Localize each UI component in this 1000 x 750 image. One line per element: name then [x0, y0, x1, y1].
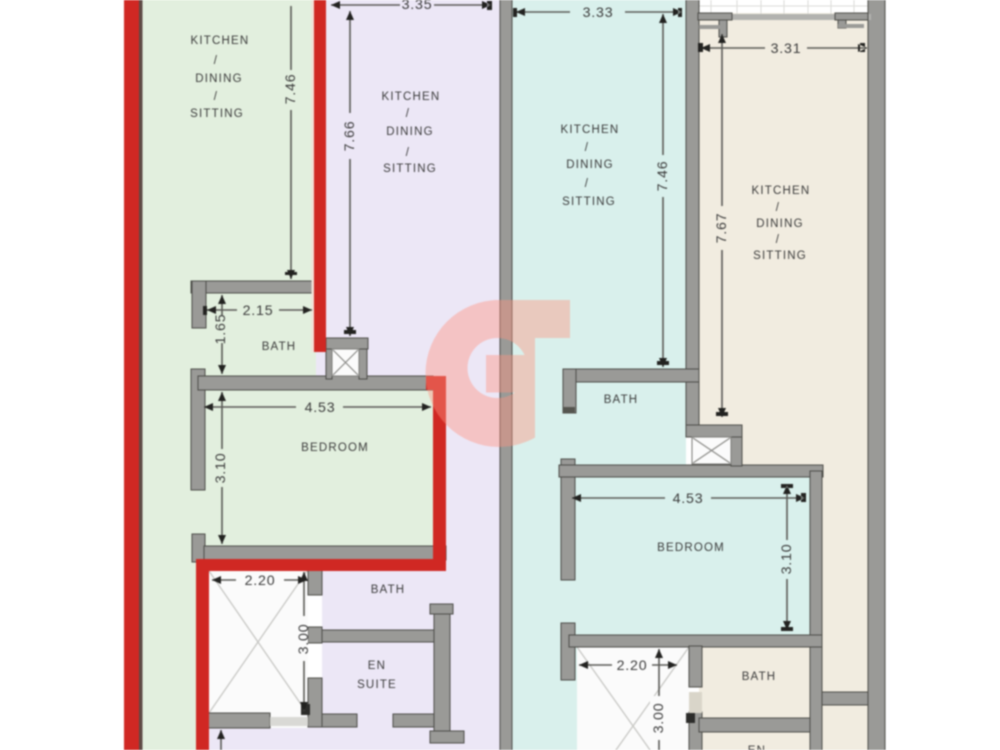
svg-text:KITCHEN: KITCHEN [752, 185, 811, 197]
svg-text:BATH: BATH [742, 671, 777, 683]
svg-text:3.35: 3.35 [402, 0, 433, 13]
svg-text:KITCHEN: KITCHEN [191, 35, 250, 47]
svg-text:/: / [585, 178, 589, 190]
svg-text:1.65: 1.65 [213, 314, 229, 345]
svg-text:SITTING: SITTING [190, 108, 244, 120]
svg-text:7.66: 7.66 [342, 121, 358, 152]
svg-text:SITTING: SITTING [383, 163, 437, 175]
svg-text:EN: EN [748, 745, 766, 750]
svg-text:2.15: 2.15 [243, 303, 274, 319]
svg-text:/: / [214, 55, 218, 67]
svg-text:3.33: 3.33 [583, 5, 614, 21]
svg-text:4.53: 4.53 [305, 400, 336, 416]
svg-text:BATH: BATH [262, 341, 297, 353]
svg-text:EN: EN [368, 660, 386, 672]
svg-text:4.53: 4.53 [673, 491, 704, 507]
svg-text:3.00: 3.00 [651, 703, 667, 734]
svg-text:DINING: DINING [386, 126, 433, 138]
svg-text:BEDROOM: BEDROOM [301, 442, 369, 454]
svg-text:/: / [776, 202, 780, 214]
svg-text:KITCHEN: KITCHEN [382, 91, 441, 103]
svg-text:/: / [214, 91, 218, 103]
svg-text:/: / [406, 147, 410, 159]
svg-text:7.67: 7.67 [714, 213, 730, 244]
svg-text:DINING: DINING [195, 73, 242, 85]
svg-text:SUITE: SUITE [357, 679, 397, 691]
svg-text:7.46: 7.46 [283, 74, 299, 105]
svg-text:/: / [776, 234, 780, 246]
svg-text:SITTING: SITTING [562, 196, 616, 208]
svg-text:BATH: BATH [371, 584, 406, 596]
svg-text:3.10: 3.10 [213, 453, 229, 484]
svg-text:2.20: 2.20 [617, 658, 648, 674]
svg-text:2.20: 2.20 [245, 573, 276, 589]
svg-text:7.46: 7.46 [655, 161, 671, 192]
svg-text:BATH: BATH [604, 394, 639, 406]
svg-text:DINING: DINING [756, 218, 803, 230]
svg-text:DINING: DINING [566, 159, 613, 171]
svg-text:BEDROOM: BEDROOM [657, 542, 725, 554]
svg-text:SITTING: SITTING [753, 250, 807, 262]
svg-text:KITCHEN: KITCHEN [561, 124, 620, 136]
svg-text:3.00: 3.00 [296, 624, 312, 655]
svg-text:3.10: 3.10 [779, 544, 795, 575]
svg-text:/: / [585, 142, 589, 154]
svg-text:/: / [406, 108, 410, 120]
svg-text:3.31: 3.31 [771, 41, 802, 57]
